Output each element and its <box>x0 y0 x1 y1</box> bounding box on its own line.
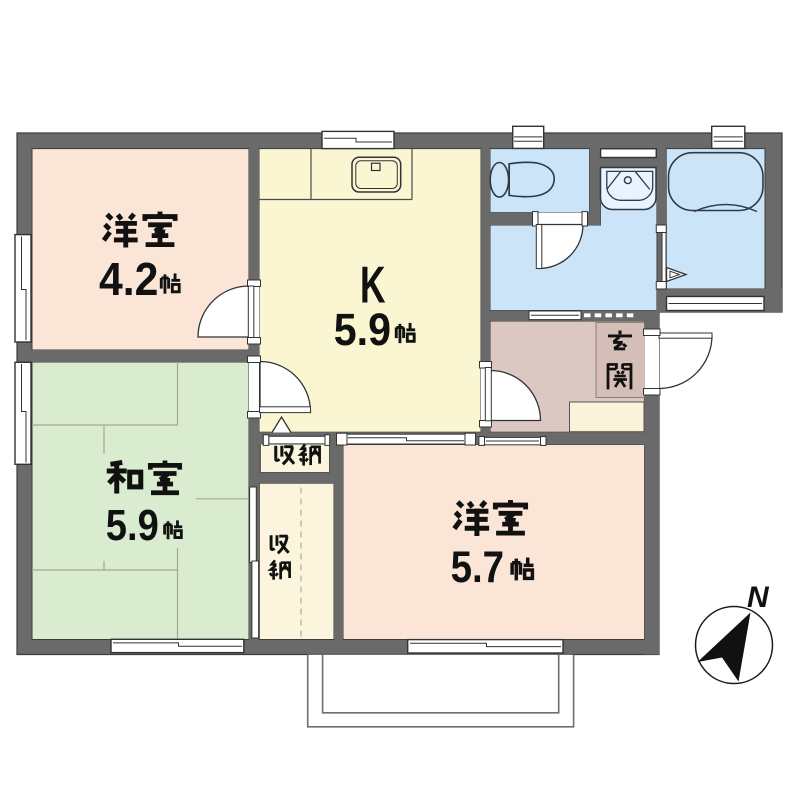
svg-text:5.9: 5.9 <box>106 501 159 550</box>
svg-text:4.2: 4.2 <box>99 253 158 305</box>
svg-text:5.9: 5.9 <box>334 304 391 355</box>
svg-text:N: N <box>747 581 770 614</box>
svg-text:5.7: 5.7 <box>451 543 505 592</box>
